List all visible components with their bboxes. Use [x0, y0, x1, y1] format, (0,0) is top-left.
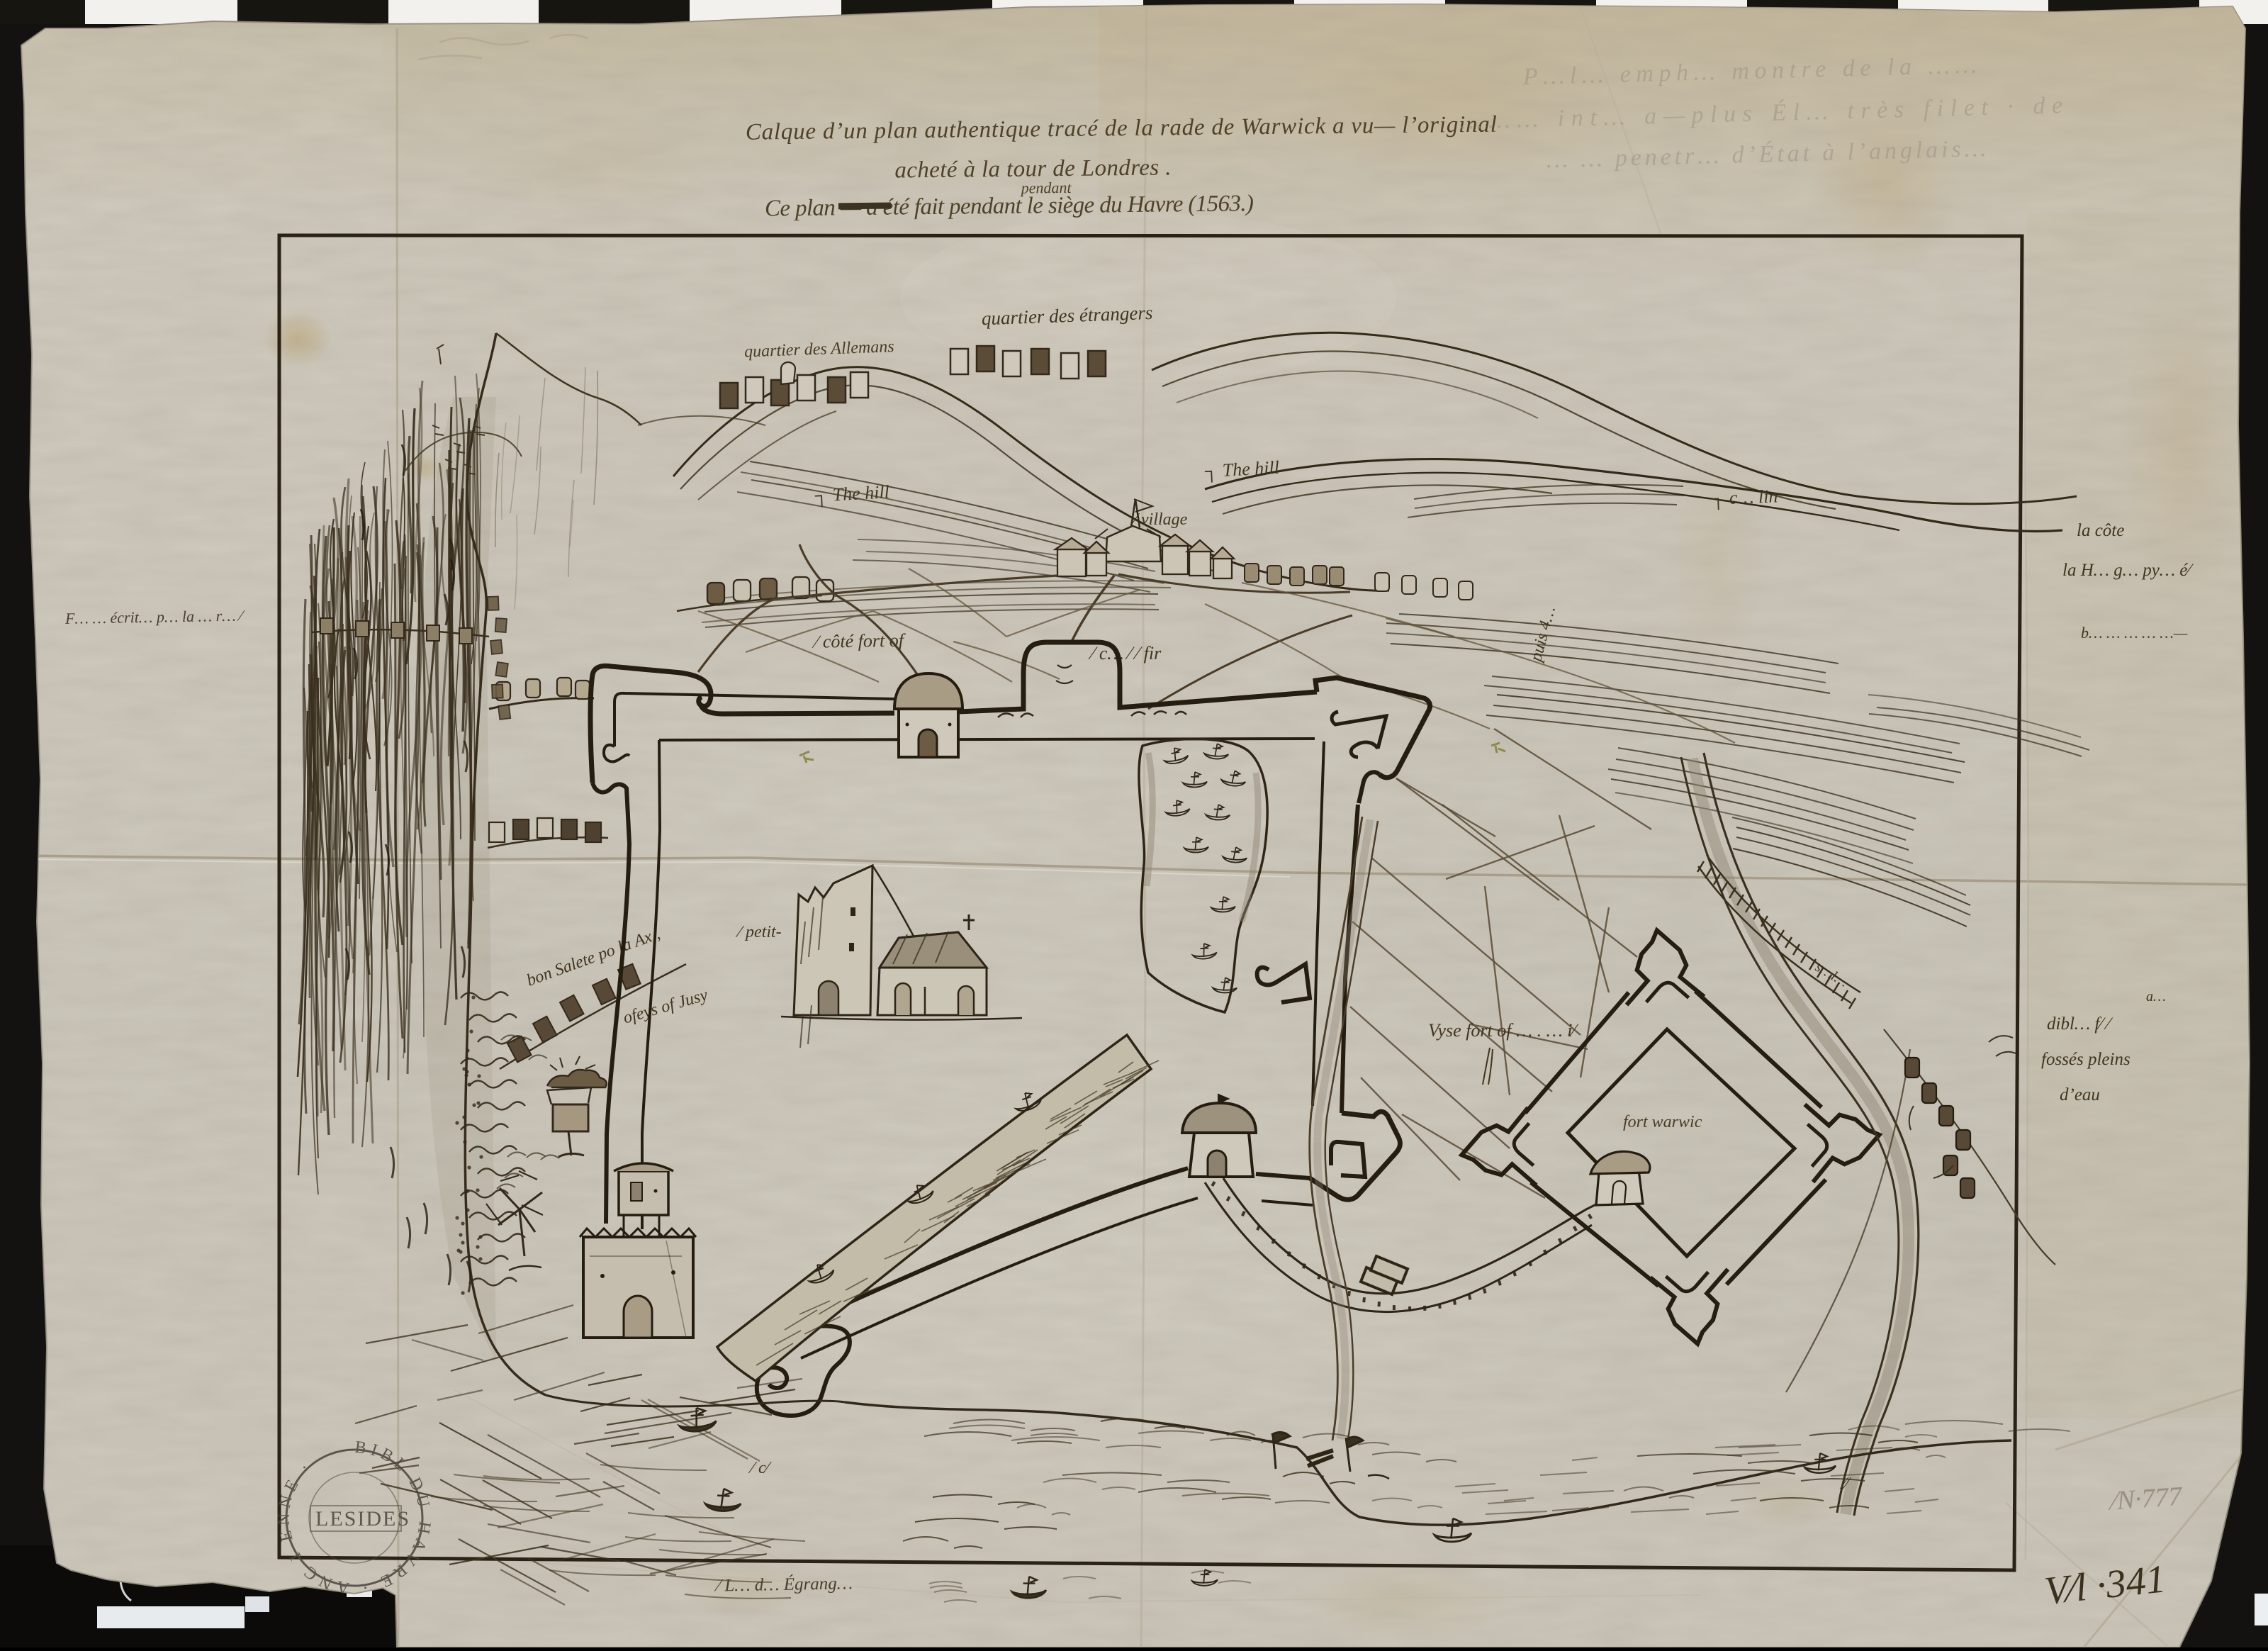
svg-text:⁄ petit-: ⁄ petit- [735, 923, 782, 941]
svg-text:Ce plan — a été fait pendant l: Ce plan — a été fait pendant le siège du… [765, 191, 1254, 221]
svg-text:a…: a… [2146, 989, 2166, 1004]
svg-text:fossés pleins: fossés pleins [2041, 1050, 2131, 1069]
svg-text:la côte: la côte [2077, 521, 2124, 540]
svg-text:d’eau: d’eau [2060, 1085, 2100, 1104]
svg-text:dibl… f⁄ ⁄: dibl… f⁄ ⁄ [2047, 1014, 2113, 1034]
svg-text:pendant: pendant [1020, 179, 1072, 197]
svg-text:LESIDES: LESIDES [315, 1507, 410, 1530]
svg-text:F… … écrit… p… la … r… ⁄: F… … écrit… p… la … r… ⁄ [64, 606, 246, 627]
svg-text:b… … … … …—: b… … … … …— [2081, 624, 2188, 642]
svg-text:⁄ côté fort of: ⁄ côté fort of [812, 630, 906, 652]
svg-text:⁄ c… ⁄ ⁄ fir: ⁄ c… ⁄ ⁄ fir [1088, 643, 1162, 664]
svg-text:⁄ L… d… Égrang…: ⁄ L… d… Égrang… [714, 1573, 853, 1595]
svg-text:┐ c… lin: ┐ c… lin [1710, 486, 1778, 510]
svg-text:Vyse fort of … . … i⁄: Vyse fort of … . … i⁄ [1428, 1020, 1578, 1041]
svg-text:fort warwic: fort warwic [1623, 1113, 1702, 1131]
svg-text:la H… g… py… é⁄: la H… g… py… é⁄ [2062, 561, 2194, 580]
svg-text:⁄N·777: ⁄N·777 [2106, 1482, 2184, 1516]
svg-text:⁄ c⁄: ⁄ c⁄ [748, 1459, 773, 1477]
